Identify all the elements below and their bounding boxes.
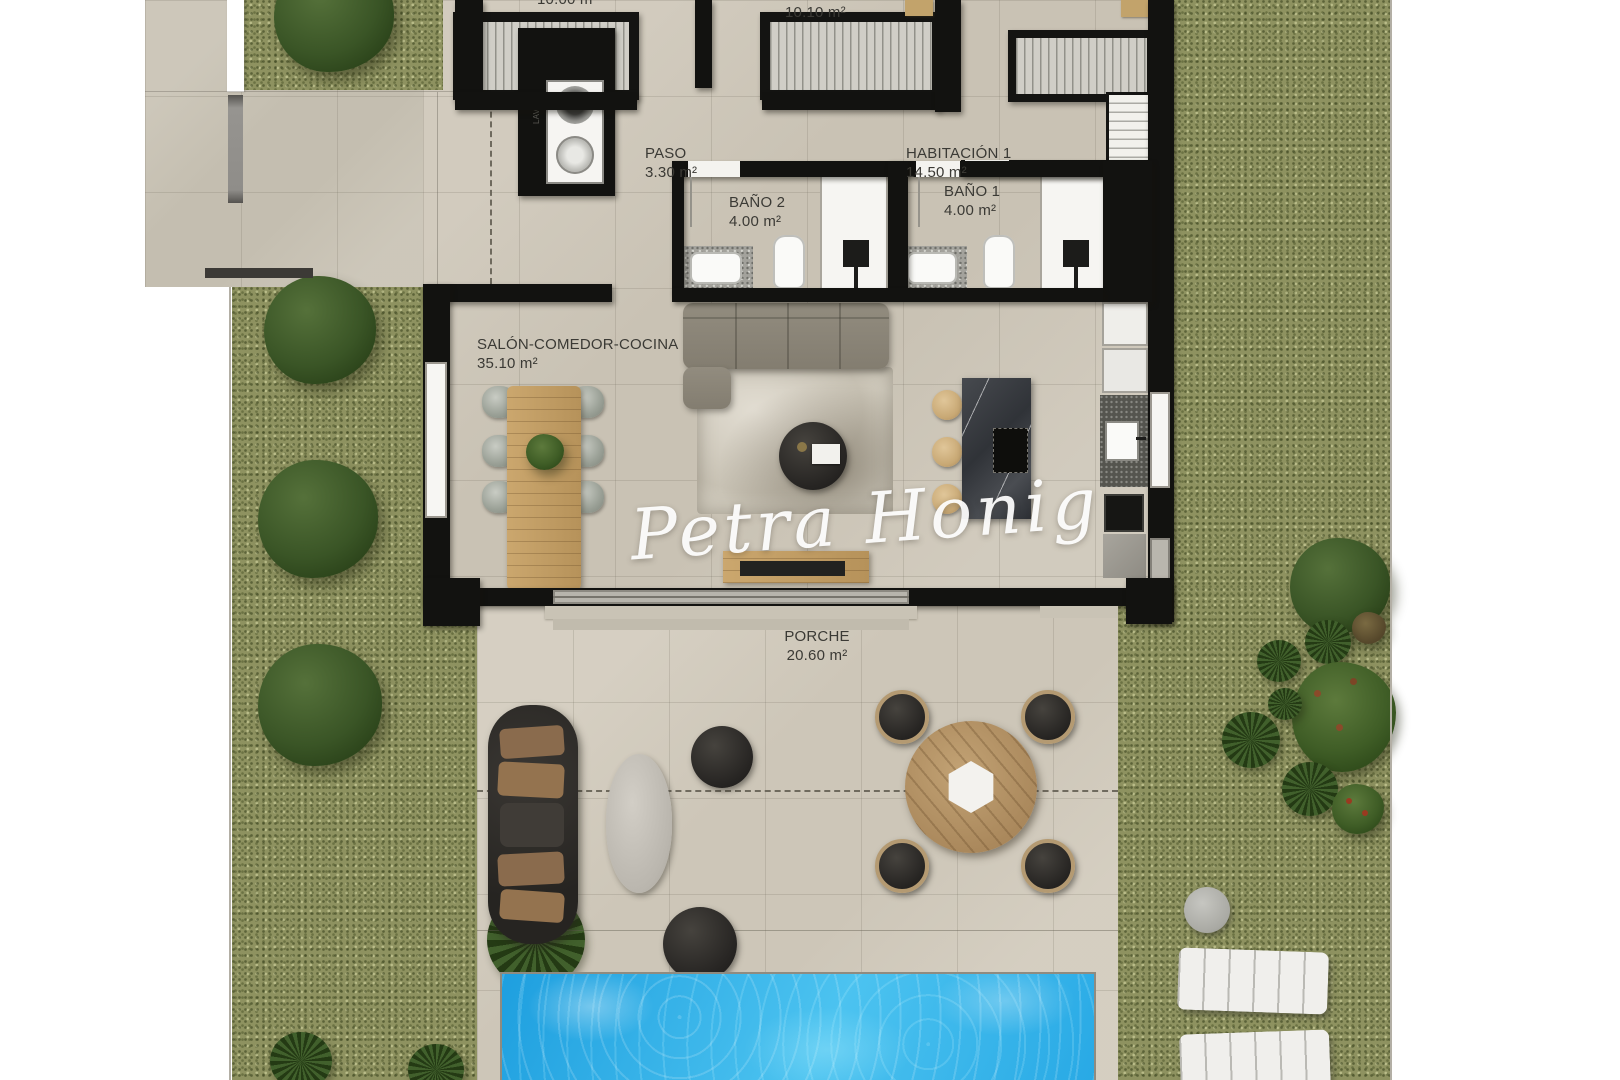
room-label-bedroom2: 10.10 m² (785, 4, 846, 23)
spiky-plant (1282, 762, 1338, 816)
paving-joint (145, 91, 457, 92)
room-area: 10.10 m² (785, 4, 846, 21)
room-name: BAÑO 1 (944, 183, 1000, 202)
oven (1104, 494, 1144, 532)
bar-stool (932, 390, 962, 420)
room-name: SALÓN-COMEDOR-COCINA (477, 336, 679, 355)
room-name: HABITACIÓN 1 (906, 145, 1011, 164)
toilet (773, 235, 805, 289)
base-cabinet (1103, 534, 1146, 578)
book (812, 444, 840, 464)
room-label-bano2: BAÑO 2 4.00 m² (729, 194, 785, 232)
porch-step (545, 606, 917, 619)
grass-tuft (1222, 712, 1280, 768)
wall (762, 92, 940, 110)
pouf (663, 907, 737, 981)
sofa (683, 303, 889, 369)
table-plant (526, 434, 564, 470)
room-label-bano1: BAÑO 1 4.00 m² (944, 183, 1000, 221)
right-garden-upper (1172, 0, 1390, 600)
wall (935, 0, 961, 112)
room-area: 20.60 m² (757, 647, 877, 666)
wall (672, 288, 1103, 302)
outdoor-dining-table (905, 721, 1037, 853)
cushion (499, 889, 565, 923)
boundary-line-right (1390, 0, 1392, 1080)
door-leaf (918, 177, 920, 227)
faucet-icon (1136, 437, 1146, 440)
front-grass-patch (244, 0, 443, 90)
grass-tuft (1257, 640, 1301, 682)
wall (455, 0, 483, 92)
shower-column-icon (843, 240, 869, 267)
swimming-pool (500, 972, 1096, 1080)
room-label-porche: PORCHE 20.60 m² (757, 628, 877, 666)
wall (455, 92, 637, 110)
paving-joint (437, 92, 438, 284)
threshold-step (205, 268, 313, 278)
dining-table (507, 386, 581, 590)
cushion (497, 761, 565, 798)
sofa-chaise (683, 367, 731, 409)
wall (695, 0, 712, 88)
dryer-drum-icon (556, 136, 594, 174)
kitchen-cabinet (1102, 302, 1148, 346)
toilet (983, 235, 1015, 289)
window (425, 362, 447, 518)
wall-right-exterior (1148, 0, 1174, 622)
room-name: PASO (645, 145, 697, 164)
floor-plan-page: LAVADO (0, 0, 1620, 1080)
grass-tuft (1268, 688, 1302, 720)
wall-corner-se (1126, 578, 1172, 624)
room-area: 3.30 m² (645, 164, 697, 183)
room-name: PORCHE (757, 628, 877, 647)
bush (274, 0, 394, 72)
room-area: 14.50 m² (906, 164, 1011, 183)
wall (423, 284, 612, 302)
door-leaf (690, 177, 692, 227)
shower (1040, 171, 1109, 290)
kitchen-sink (1105, 421, 1139, 461)
room-label-salon: SALÓN-COMEDOR-COCINA 35.10 m² (477, 336, 679, 374)
table-centerpiece (945, 761, 997, 813)
wall-corner-sw (423, 578, 480, 626)
room-area: 4.00 m² (729, 213, 785, 232)
room-label-bedroom3: 10.00 m² (537, 0, 598, 10)
wall (888, 161, 908, 292)
sink (690, 252, 742, 284)
window (1150, 392, 1170, 488)
room-area: 35.10 m² (477, 355, 679, 374)
cushion (497, 851, 565, 886)
shower-column-icon (1063, 240, 1089, 267)
seat-cushion (500, 803, 564, 847)
wall (1103, 161, 1152, 302)
kitchen-counter (1100, 395, 1150, 487)
kitchen-cabinet (1102, 348, 1148, 393)
outdoor-chair (875, 839, 929, 893)
bar-stool (932, 437, 962, 467)
cushion (499, 725, 565, 759)
sliding-door (553, 590, 909, 604)
room-label-paso: PASO 3.30 m² (645, 145, 697, 183)
boundary-line-left (229, 287, 231, 1080)
outdoor-chair (1021, 690, 1075, 744)
room-area: 4.00 m² (944, 202, 1000, 221)
grass-tuft (1305, 620, 1351, 664)
room-area: 10.00 m² (537, 0, 598, 8)
laundry-closet: LAVADO (518, 28, 615, 196)
sun-lounger (1179, 1029, 1331, 1080)
outdoor-chair (875, 690, 929, 744)
sun-lounger (1177, 947, 1329, 1014)
entry-dashed-line (490, 92, 492, 284)
pouf (691, 726, 753, 788)
shower (820, 171, 888, 290)
side-table (905, 0, 933, 16)
deck-joint-line (477, 930, 1118, 931)
porch-step (1040, 606, 1118, 618)
entrance-gate (228, 95, 243, 203)
outdoor-chair (1021, 839, 1075, 893)
window (1150, 538, 1170, 582)
sink (907, 252, 957, 284)
outdoor-sofa (488, 705, 578, 944)
stepping-stone (1184, 887, 1230, 933)
room-name: BAÑO 2 (729, 194, 785, 213)
side-table (1121, 0, 1148, 17)
room-label-habitacion1: HABITACIÓN 1 14.50 m² (906, 145, 1011, 183)
outdoor-side-table (606, 754, 672, 893)
bed (760, 12, 942, 100)
boundary-wall-strip (227, 0, 244, 92)
